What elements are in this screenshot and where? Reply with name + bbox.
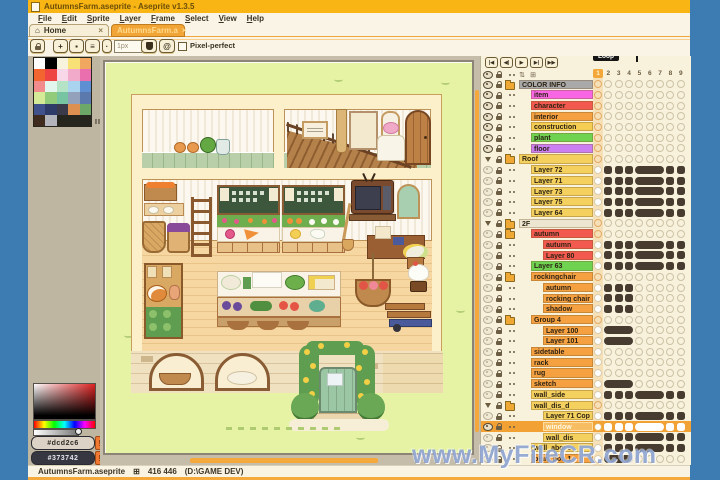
cel-dot[interactable] xyxy=(615,391,623,399)
cel-empty[interactable] xyxy=(646,134,654,142)
gray-slider[interactable] xyxy=(33,429,79,436)
cel-linked-span[interactable] xyxy=(635,412,664,420)
cel-empty[interactable] xyxy=(666,219,674,227)
link-icon[interactable] xyxy=(505,422,515,431)
cel-empty[interactable] xyxy=(666,273,674,281)
cel-empty[interactable] xyxy=(656,401,664,409)
cel-empty[interactable] xyxy=(635,91,643,99)
palette-swatch[interactable] xyxy=(45,115,56,126)
cel-dot[interactable] xyxy=(666,444,674,452)
layer-label[interactable]: Layer 75 xyxy=(531,197,593,206)
link-icon[interactable] xyxy=(505,326,515,335)
cel-empty[interactable] xyxy=(625,123,633,131)
cel-empty[interactable] xyxy=(615,144,623,152)
cel-empty[interactable] xyxy=(677,326,685,334)
cel-empty[interactable] xyxy=(594,155,602,163)
cel-empty[interactable] xyxy=(677,380,685,388)
lock-icon[interactable] xyxy=(494,262,504,271)
cel-empty[interactable] xyxy=(646,155,654,163)
link-icon[interactable] xyxy=(505,208,515,217)
palette-swatch[interactable] xyxy=(57,58,68,69)
cel-empty[interactable] xyxy=(666,284,674,292)
cel-empty[interactable] xyxy=(594,401,602,409)
cel-empty[interactable] xyxy=(666,358,674,366)
cel-empty[interactable] xyxy=(604,155,612,163)
cel-dot[interactable] xyxy=(666,177,674,185)
cel-keyframe[interactable] xyxy=(594,198,602,206)
eye-icon[interactable] xyxy=(483,390,493,399)
palette-swatch[interactable] xyxy=(68,81,79,92)
cel-linked-span[interactable] xyxy=(635,177,664,185)
playback-button-2[interactable]: ▶ xyxy=(515,57,528,68)
cel-empty[interactable] xyxy=(594,144,602,152)
menu-item-help[interactable]: Help xyxy=(247,14,264,23)
cel-empty[interactable] xyxy=(677,230,685,238)
frame-number-7[interactable]: 7 xyxy=(655,69,665,78)
cel-empty[interactable] xyxy=(646,102,654,110)
cel-dot[interactable] xyxy=(604,423,612,431)
eye-icon[interactable] xyxy=(483,208,493,217)
cel-empty[interactable] xyxy=(666,144,674,152)
layer-row-rockingchair[interactable]: rockingchair xyxy=(481,272,691,283)
close-icon[interactable]: × xyxy=(98,26,103,35)
layer-label[interactable]: autumn xyxy=(543,283,593,292)
lock-icon[interactable] xyxy=(494,112,504,121)
cel-empty[interactable] xyxy=(615,273,623,281)
link-icon[interactable] xyxy=(505,187,515,196)
cel-linked-span[interactable] xyxy=(635,262,664,270)
cel-empty[interactable] xyxy=(677,91,685,99)
timeline-option-icon[interactable]: ⇅ xyxy=(517,70,527,79)
cel-empty[interactable] xyxy=(646,369,654,377)
layer-label[interactable]: autumn xyxy=(531,229,593,238)
cel-dot[interactable] xyxy=(615,177,623,185)
menu-item-frame[interactable]: Frame xyxy=(151,14,175,23)
palette-swatch[interactable] xyxy=(34,92,45,103)
cel-empty[interactable] xyxy=(604,369,612,377)
cel-keyframe[interactable] xyxy=(594,294,602,302)
cel-empty[interactable] xyxy=(656,273,664,281)
vertical-scrollbar[interactable] xyxy=(475,90,479,432)
lock-icon[interactable] xyxy=(494,401,504,410)
lock-icon[interactable] xyxy=(494,390,504,399)
cel-empty[interactable] xyxy=(646,401,654,409)
eye-icon[interactable] xyxy=(483,101,493,110)
layer-row-sketch[interactable]: sketch xyxy=(481,379,691,390)
lock-icon[interactable] xyxy=(494,380,504,389)
palette-swatch[interactable] xyxy=(80,69,91,80)
layer-label[interactable]: shadow xyxy=(543,304,593,313)
eye-icon[interactable] xyxy=(483,262,493,271)
eye-icon[interactable] xyxy=(483,91,493,100)
close-icon[interactable]: × xyxy=(182,26,187,35)
eye-icon[interactable] xyxy=(483,422,493,431)
cel-linked-span[interactable] xyxy=(635,251,664,259)
layer-label[interactable]: wall_dis_d xyxy=(531,401,593,410)
layer-row-wall_dis_d[interactable]: wall_dis_d xyxy=(481,400,691,411)
lock-icon[interactable] xyxy=(494,251,504,260)
cel-dot[interactable] xyxy=(604,412,612,420)
cel-empty[interactable] xyxy=(594,123,602,131)
layer-row-layer-63[interactable]: Layer 63 xyxy=(481,261,691,272)
horizontal-scrollbar[interactable] xyxy=(190,458,378,463)
cel-keyframe[interactable] xyxy=(594,412,602,420)
dynamics-button[interactable]: @ xyxy=(159,39,175,53)
lock-icon[interactable] xyxy=(494,176,504,185)
cel-dot[interactable] xyxy=(625,177,633,185)
cel-empty[interactable] xyxy=(635,294,643,302)
layer-label[interactable]: Layer 100 xyxy=(543,326,593,335)
layer-label[interactable]: Layer 101 xyxy=(543,336,593,345)
palette-swatch[interactable] xyxy=(45,81,56,92)
cel-dot[interactable] xyxy=(677,423,685,431)
cel-empty[interactable] xyxy=(677,80,685,88)
cel-empty[interactable] xyxy=(615,358,623,366)
palette-swatch[interactable] xyxy=(34,69,45,80)
link-icon[interactable] xyxy=(505,176,515,185)
cel-dot[interactable] xyxy=(666,251,674,259)
cel-dot[interactable] xyxy=(625,166,633,174)
cel-empty[interactable] xyxy=(656,337,664,345)
link-icon[interactable] xyxy=(505,251,515,260)
eye-icon[interactable] xyxy=(483,198,493,207)
cel-empty[interactable] xyxy=(604,401,612,409)
layer-row-floor[interactable]: floor xyxy=(481,143,691,154)
eye-icon-col[interactable] xyxy=(483,70,493,79)
lock-icon[interactable] xyxy=(494,198,504,207)
layer-row-rocking-chair[interactable]: rocking chair xyxy=(481,293,691,304)
cel-empty[interactable] xyxy=(666,369,674,377)
cel-empty[interactable] xyxy=(635,337,643,345)
folder-icon[interactable] xyxy=(505,230,515,239)
cel-empty[interactable] xyxy=(656,123,664,131)
eye-icon[interactable] xyxy=(483,369,493,378)
cel-empty[interactable] xyxy=(666,230,674,238)
cel-empty[interactable] xyxy=(635,273,643,281)
layer-row-group-4[interactable]: Group 4 xyxy=(481,314,691,325)
cel-dot[interactable] xyxy=(625,412,633,420)
cel-empty[interactable] xyxy=(635,230,643,238)
cel-empty[interactable] xyxy=(666,305,674,313)
cel-empty[interactable] xyxy=(615,401,623,409)
layer-label[interactable]: Layer 73 xyxy=(531,187,593,196)
lock-icon[interactable] xyxy=(494,91,504,100)
palette-swatch[interactable] xyxy=(45,92,56,103)
eye-icon[interactable] xyxy=(483,123,493,132)
cel-empty[interactable] xyxy=(635,80,643,88)
link-icon[interactable] xyxy=(505,348,515,357)
cel-empty[interactable] xyxy=(646,326,654,334)
cel-dot[interactable] xyxy=(604,391,612,399)
cel-empty[interactable] xyxy=(625,348,633,356)
lines-option-button[interactable]: ≡ xyxy=(85,39,100,53)
cel-dot[interactable] xyxy=(615,305,623,313)
cel-empty[interactable] xyxy=(666,91,674,99)
cel-empty[interactable] xyxy=(646,305,654,313)
lock-icon[interactable] xyxy=(494,422,504,431)
cel-linked-span[interactable] xyxy=(635,209,664,217)
cel-empty[interactable] xyxy=(635,348,643,356)
lock-icon[interactable] xyxy=(494,369,504,378)
brush-size-input[interactable] xyxy=(114,40,144,53)
layer-row-autumn[interactable]: autumn xyxy=(481,229,691,240)
cel-empty[interactable] xyxy=(666,134,674,142)
cel-empty[interactable] xyxy=(677,337,685,345)
layer-row-layer-72[interactable]: Layer 72 xyxy=(481,165,691,176)
palette-swatch[interactable] xyxy=(57,81,68,92)
playback-button-4[interactable]: ▶▶ xyxy=(545,57,558,68)
eye-icon[interactable] xyxy=(483,326,493,335)
layer-label[interactable]: item xyxy=(531,90,593,99)
layer-label[interactable]: plant xyxy=(531,133,593,142)
palette-swatch[interactable] xyxy=(34,58,45,69)
eye-icon[interactable] xyxy=(483,241,493,250)
cel-dot[interactable] xyxy=(625,187,633,195)
cel-dot[interactable] xyxy=(625,284,633,292)
cel-dot[interactable] xyxy=(615,209,623,217)
layer-row-character[interactable]: character xyxy=(481,100,691,111)
cel-dot[interactable] xyxy=(625,423,633,431)
cel-empty[interactable] xyxy=(594,91,602,99)
cel-empty[interactable] xyxy=(666,326,674,334)
cel-dot[interactable] xyxy=(666,391,674,399)
eye-icon[interactable] xyxy=(483,134,493,143)
cel-empty[interactable] xyxy=(677,284,685,292)
layer-row-layer-71[interactable]: Layer 71 xyxy=(481,175,691,186)
lock-icon[interactable] xyxy=(494,144,504,153)
cel-empty[interactable] xyxy=(635,155,643,163)
cel-empty[interactable] xyxy=(656,358,664,366)
layer-row-color-info[interactable]: COLOR INFO xyxy=(481,79,691,90)
cel-empty[interactable] xyxy=(635,144,643,152)
cel-dot[interactable] xyxy=(604,241,612,249)
link-icon[interactable] xyxy=(505,390,515,399)
cel-empty[interactable] xyxy=(635,380,643,388)
cel-empty[interactable] xyxy=(656,112,664,120)
layer-label[interactable]: construction xyxy=(531,122,593,131)
cel-empty[interactable] xyxy=(604,144,612,152)
cel-keyframe[interactable] xyxy=(594,348,602,356)
cel-empty[interactable] xyxy=(615,316,623,324)
layer-label[interactable]: autumn xyxy=(543,240,593,249)
tab-home[interactable]: ⌂ Home × xyxy=(29,24,109,37)
layer-label[interactable]: window xyxy=(543,422,593,431)
cel-dot[interactable] xyxy=(677,187,685,195)
palette-swatch[interactable] xyxy=(34,81,45,92)
cel-empty[interactable] xyxy=(604,102,612,110)
cel-dot[interactable] xyxy=(677,412,685,420)
layer-label[interactable]: rockingchair xyxy=(531,272,593,281)
folder-icon[interactable] xyxy=(505,80,515,89)
eye-icon[interactable] xyxy=(483,166,493,175)
cel-empty[interactable] xyxy=(615,112,623,120)
palette-swatch[interactable] xyxy=(57,92,68,103)
cel-empty[interactable] xyxy=(615,155,623,163)
foreground-color-button[interactable]: #dcd2c6 xyxy=(31,436,95,450)
layer-row-layer-80[interactable]: Layer 80 xyxy=(481,250,691,261)
cel-empty[interactable] xyxy=(594,80,602,88)
cel-empty[interactable] xyxy=(635,123,643,131)
layer-label[interactable]: rocking chair xyxy=(543,294,593,303)
eye-icon[interactable] xyxy=(483,273,493,282)
cel-linked-span[interactable] xyxy=(604,337,633,345)
cel-empty[interactable] xyxy=(615,348,623,356)
cel-keyframe[interactable] xyxy=(594,177,602,185)
palette-swatch[interactable] xyxy=(57,104,68,115)
cel-empty[interactable] xyxy=(625,219,633,227)
cel-empty[interactable] xyxy=(656,134,664,142)
cel-empty[interactable] xyxy=(656,230,664,238)
cel-empty[interactable] xyxy=(594,230,602,238)
eye-icon[interactable] xyxy=(483,348,493,357)
cel-dot[interactable] xyxy=(677,209,685,217)
cel-empty[interactable] xyxy=(646,219,654,227)
cel-empty[interactable] xyxy=(646,284,654,292)
layer-label[interactable]: wall_side xyxy=(531,390,593,399)
cel-empty[interactable] xyxy=(656,455,664,463)
cel-dot[interactable] xyxy=(604,209,612,217)
eye-icon[interactable] xyxy=(483,315,493,324)
lock-icon[interactable] xyxy=(494,294,504,303)
palette-swatch[interactable] xyxy=(68,58,79,69)
cel-empty[interactable] xyxy=(625,316,633,324)
layer-row-plant[interactable]: plant xyxy=(481,133,691,144)
layer-label[interactable]: sidetable xyxy=(531,347,593,356)
cel-empty[interactable] xyxy=(604,358,612,366)
lock-icon[interactable] xyxy=(494,155,504,164)
layer-row-layer-100[interactable]: Layer 100 xyxy=(481,325,691,336)
layer-row-2f[interactable]: 2F xyxy=(481,218,691,229)
cel-empty[interactable] xyxy=(615,134,623,142)
cel-empty[interactable] xyxy=(666,401,674,409)
cel-empty[interactable] xyxy=(604,112,612,120)
layer-row-autumn[interactable]: autumn xyxy=(481,282,691,293)
menu-item-edit[interactable]: Edit xyxy=(62,14,77,23)
playback-button-1[interactable]: ◀| xyxy=(500,57,513,68)
cel-keyframe[interactable] xyxy=(594,284,602,292)
layer-label[interactable]: Layer 71 Cop xyxy=(543,411,593,420)
cel-empty[interactable] xyxy=(646,273,654,281)
palette-swatch[interactable] xyxy=(34,115,45,126)
cel-dot[interactable] xyxy=(615,284,623,292)
link-icon[interactable] xyxy=(505,305,515,314)
layer-label[interactable]: Group 4 xyxy=(531,315,593,324)
cel-empty[interactable] xyxy=(635,316,643,324)
lock-icon[interactable] xyxy=(494,412,504,421)
frame-number-4[interactable]: 4 xyxy=(624,69,634,78)
lock-icon[interactable] xyxy=(494,358,504,367)
frame-number-3[interactable]: 3 xyxy=(614,69,624,78)
cel-dot[interactable] xyxy=(615,294,623,302)
cel-empty[interactable] xyxy=(656,91,664,99)
eye-icon[interactable] xyxy=(483,337,493,346)
eye-icon[interactable] xyxy=(483,358,493,367)
link-icon[interactable] xyxy=(505,134,515,143)
cel-dot[interactable] xyxy=(615,262,623,270)
layer-label[interactable]: Layer 72 xyxy=(531,165,593,174)
background-color-button[interactable]: #373742 xyxy=(31,451,95,465)
palette-swatch[interactable] xyxy=(45,104,56,115)
sprite-viewport[interactable] xyxy=(106,63,471,452)
palette-swatch[interactable] xyxy=(80,58,91,69)
cel-dot[interactable] xyxy=(604,305,612,313)
pixel-perfect-checkbox[interactable] xyxy=(178,42,187,51)
cel-empty[interactable] xyxy=(677,455,685,463)
layer-row-layer-101[interactable]: Layer 101 xyxy=(481,336,691,347)
cel-dot[interactable] xyxy=(604,198,612,206)
cel-empty[interactable] xyxy=(625,144,633,152)
cel-empty[interactable] xyxy=(666,455,674,463)
cel-keyframe[interactable] xyxy=(594,380,602,388)
brush-dot-button[interactable]: · xyxy=(102,39,112,53)
cel-empty[interactable] xyxy=(677,348,685,356)
layer-label[interactable]: character xyxy=(531,101,593,110)
lock-icon[interactable] xyxy=(494,283,504,292)
layer-row-rack[interactable]: rack xyxy=(481,357,691,368)
cel-keyframe[interactable] xyxy=(594,326,602,334)
cel-dot[interactable] xyxy=(604,284,612,292)
frame-number-9[interactable]: 9 xyxy=(676,69,686,78)
cel-empty[interactable] xyxy=(604,80,612,88)
plus-option-button[interactable]: + xyxy=(53,39,68,53)
cel-empty[interactable] xyxy=(646,80,654,88)
lock-icon[interactable] xyxy=(494,273,504,282)
cel-empty[interactable] xyxy=(666,123,674,131)
cel-empty[interactable] xyxy=(656,294,664,302)
layer-label[interactable]: Layer 71 xyxy=(531,176,593,185)
layer-row-layer-64[interactable]: Layer 64 xyxy=(481,207,691,218)
layer-row-construction[interactable]: construction xyxy=(481,122,691,133)
cel-empty[interactable] xyxy=(656,348,664,356)
cel-dot[interactable] xyxy=(666,423,674,431)
timeline-option-icon[interactable]: ⊞ xyxy=(528,70,538,79)
cel-empty[interactable] xyxy=(666,316,674,324)
link-icon[interactable] xyxy=(505,283,515,292)
cel-empty[interactable] xyxy=(625,155,633,163)
palette-swatch[interactable] xyxy=(45,58,56,69)
palette-swatch[interactable] xyxy=(57,69,68,80)
layer-row-wall_side[interactable]: wall_side xyxy=(481,389,691,400)
layer-row-window[interactable]: window xyxy=(481,421,691,432)
cel-keyframe[interactable] xyxy=(594,305,602,313)
palette-swatch[interactable] xyxy=(45,69,56,80)
cel-empty[interactable] xyxy=(604,273,612,281)
eye-icon[interactable] xyxy=(483,144,493,153)
cel-empty[interactable] xyxy=(635,284,643,292)
cel-empty[interactable] xyxy=(615,369,623,377)
cel-dot[interactable] xyxy=(615,241,623,249)
lock-icon[interactable] xyxy=(494,80,504,89)
cel-dot[interactable] xyxy=(615,412,623,420)
layer-label[interactable]: rug xyxy=(531,368,593,377)
folder-icon[interactable] xyxy=(505,273,515,282)
cel-empty[interactable] xyxy=(594,316,602,324)
cel-empty[interactable] xyxy=(625,369,633,377)
eye-icon[interactable] xyxy=(483,283,493,292)
cel-empty[interactable] xyxy=(677,273,685,281)
link-icon-col[interactable] xyxy=(505,70,515,79)
cel-dot[interactable] xyxy=(615,423,623,431)
cel-keyframe[interactable] xyxy=(594,209,602,217)
lock-icon[interactable] xyxy=(494,337,504,346)
cel-empty[interactable] xyxy=(646,294,654,302)
lock-icon[interactable] xyxy=(494,241,504,250)
cel-linked-span[interactable] xyxy=(635,391,664,399)
cel-empty[interactable] xyxy=(615,91,623,99)
lock-icon[interactable] xyxy=(494,208,504,217)
cel-empty[interactable] xyxy=(677,112,685,120)
cel-dot[interactable] xyxy=(677,177,685,185)
